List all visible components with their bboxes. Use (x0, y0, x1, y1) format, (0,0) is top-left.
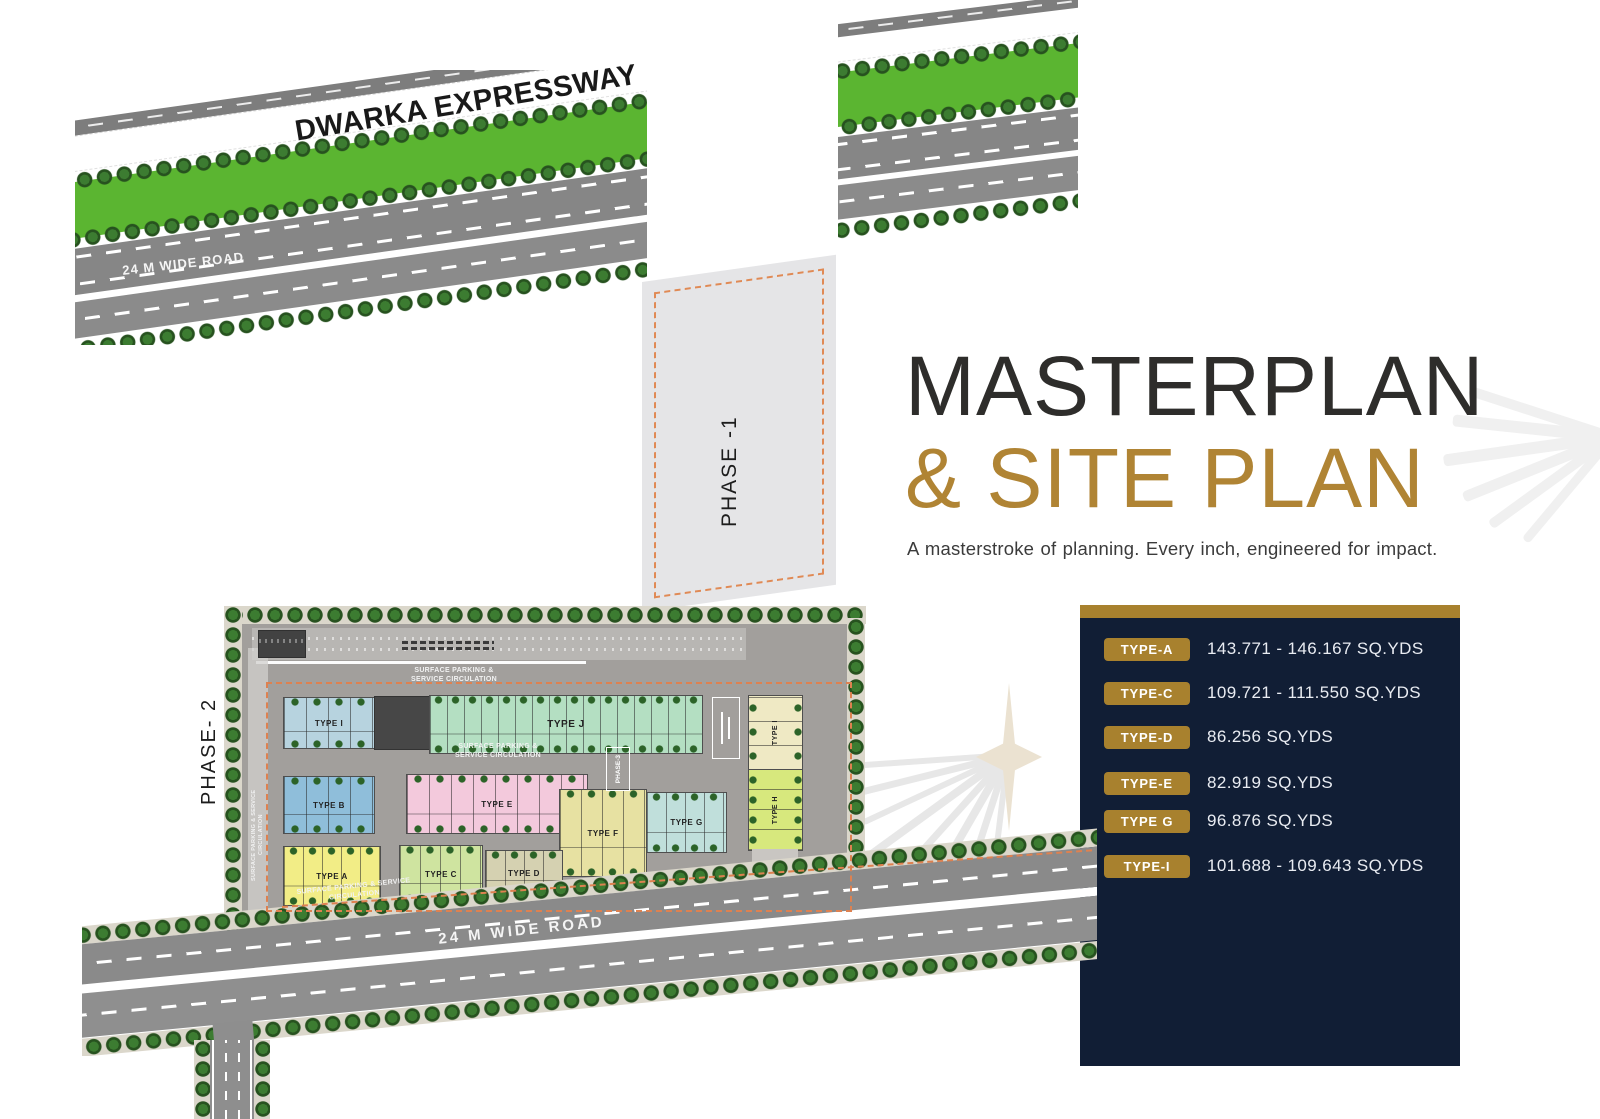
page-title-line2: & SITE PLAN (905, 436, 1425, 520)
parking-hatch-strip (252, 628, 746, 660)
entry-gate-box (258, 630, 306, 658)
type-g-value: 96.876 SQ.YDS (1207, 811, 1333, 831)
type-i-badge: TYPE-I (1104, 855, 1190, 878)
legend-row: TYPE-A 143.771 - 146.167 SQ.YDS (1080, 636, 1424, 662)
masterplan-poster: DWARKA EXPRESSWAY 24 M WIDE ROAD PHASE -… (0, 0, 1600, 1119)
parking-note-middle: SURFACE PARKING & SERVICE CIRCULATION (442, 742, 554, 760)
legend-row: TYPE G 96.876 SQ.YDS (1080, 808, 1333, 834)
type-c-value: 109.721 - 111.550 SQ.YDS (1207, 683, 1421, 703)
tree-column (194, 1040, 210, 1119)
expressway-right-segment (838, 0, 1078, 264)
type-c-badge: TYPE-C (1104, 682, 1190, 705)
legend-row: TYPE-C 109.721 - 111.550 SQ.YDS (1080, 680, 1421, 706)
vertical-road (194, 1040, 270, 1119)
phase2-label: PHASE- 2 (198, 645, 221, 805)
type-g-badge: TYPE G (1104, 810, 1190, 833)
legend-gold-bar (1080, 605, 1460, 618)
legend-row: TYPE-D 86.256 SQ.YDS (1080, 724, 1333, 750)
phase3-label: PHASE-3 (615, 755, 622, 783)
phase3-box: PHASE-3 (606, 747, 630, 791)
legend-row: TYPE-E 82.919 SQ.YDS (1080, 770, 1333, 796)
type-e-value: 82.919 SQ.YDS (1207, 773, 1333, 793)
phase2-dashed-boundary (266, 682, 852, 912)
type-d-value: 86.256 SQ.YDS (1207, 727, 1333, 747)
page-title-line1: MASTERPLAN (905, 344, 1484, 428)
type-a-value: 143.771 - 146.167 SQ.YDS (1207, 639, 1424, 659)
legend-row: TYPE-I 101.688 - 109.643 SQ.YDS (1080, 853, 1424, 879)
type-a-badge: TYPE-A (1104, 638, 1190, 661)
service-note-box (712, 697, 740, 759)
legend-panel: TYPE-A 143.771 - 146.167 SQ.YDS TYPE-C 1… (1080, 605, 1460, 1066)
phase2-boundary-trees-top (226, 606, 866, 624)
white-edge-line (256, 661, 586, 664)
micro-text-bar (402, 641, 494, 650)
page-subtitle: A masterstroke of planning. Every inch, … (907, 538, 1437, 560)
vertical-carriageway (210, 1040, 254, 1119)
type-d-badge: TYPE-D (1104, 726, 1190, 749)
type-e-badge: TYPE-E (1104, 772, 1190, 795)
tree-column (254, 1040, 270, 1119)
type-i-value: 101.688 - 109.643 SQ.YDS (1207, 856, 1424, 876)
phase1-label: PHASE -1 (718, 352, 742, 527)
